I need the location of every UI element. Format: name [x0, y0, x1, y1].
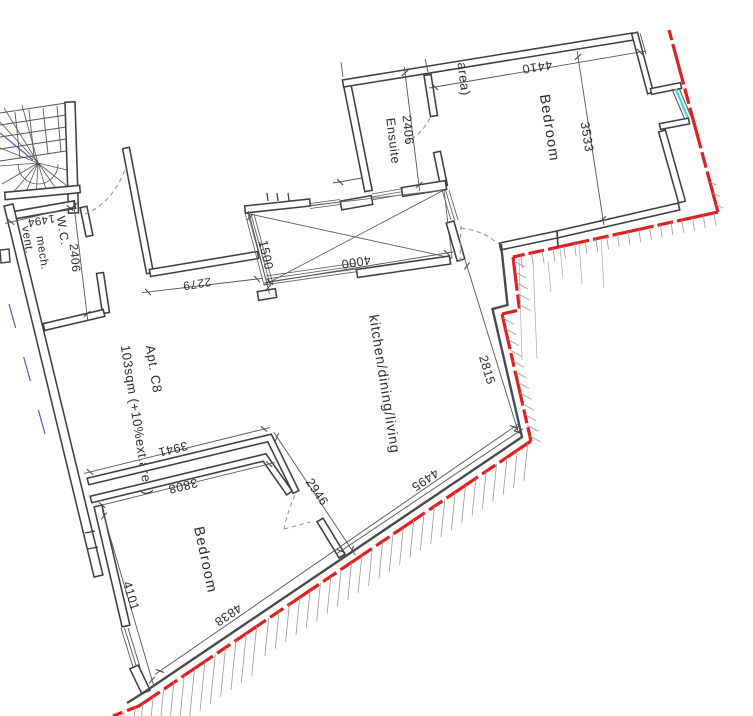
svg-text:2406: 2406	[67, 243, 84, 273]
